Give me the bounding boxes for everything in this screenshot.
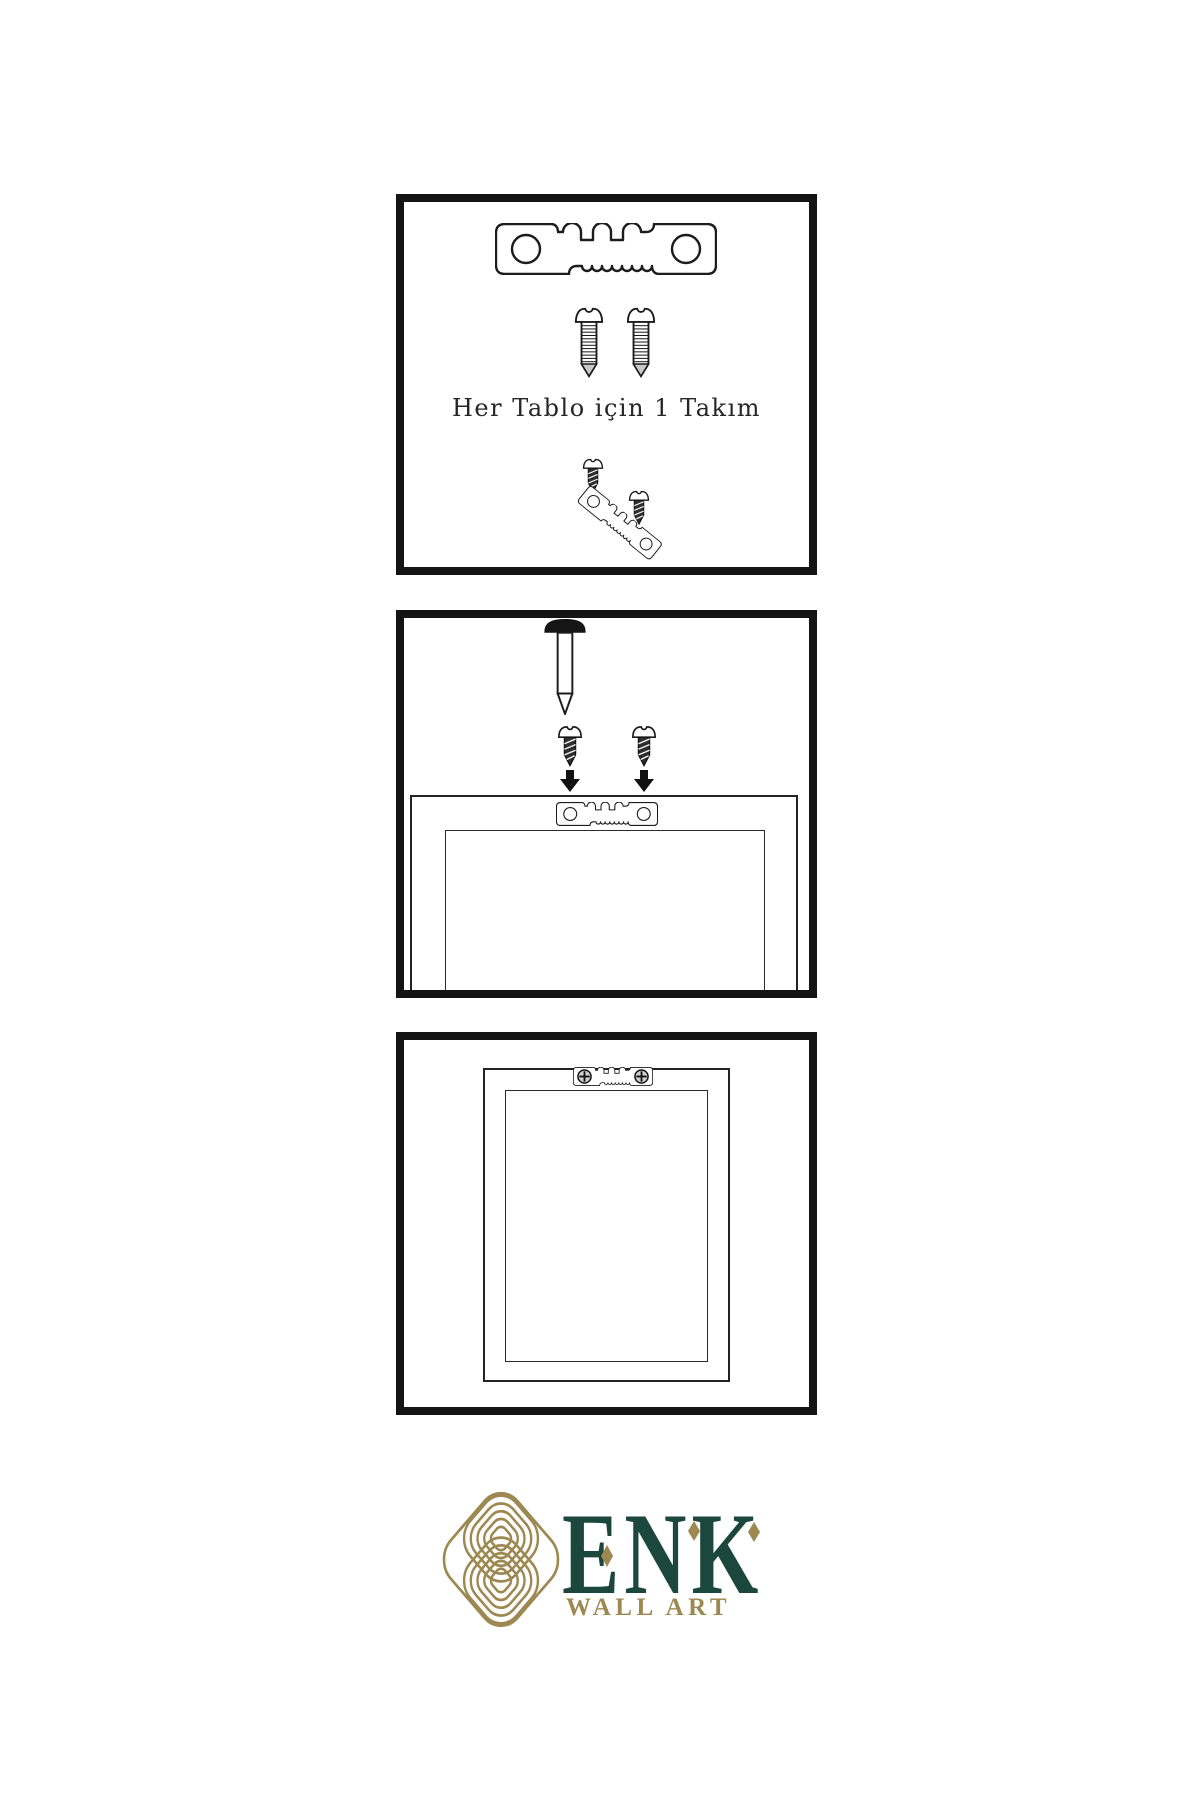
step-2-panel-mounting <box>396 610 817 998</box>
sawtooth-hanger-icon-tilted <box>576 484 664 561</box>
sawtooth-hanger-icon <box>495 223 717 275</box>
knot-logo-icon <box>441 1488 561 1631</box>
arrow-down-icon <box>560 770 580 792</box>
short-screw-icon <box>557 725 583 768</box>
short-screw-icon <box>631 725 657 768</box>
instruction-sheet: Her Tablo için 1 Takım <box>0 0 1200 1800</box>
frame-back-inner-edge <box>505 1090 708 1362</box>
screw-head-icon <box>577 1069 592 1084</box>
step-1-panel-kit-contents: Her Tablo için 1 Takım <box>396 194 817 575</box>
long-screw-icon <box>573 306 605 379</box>
frame-back-inner-edge <box>445 830 765 998</box>
brand-tagline: WALL ART <box>566 1594 731 1622</box>
short-screw-icon <box>628 490 650 526</box>
step-1-caption: Her Tablo için 1 Takım <box>404 394 809 422</box>
arrow-down-icon <box>634 770 654 792</box>
wall-nail-icon <box>543 618 587 718</box>
screw-head-icon <box>634 1069 649 1084</box>
sawtooth-hanger-icon <box>556 802 658 826</box>
step-3-panel-hung-frame <box>396 1032 817 1415</box>
long-screw-icon <box>625 306 657 379</box>
